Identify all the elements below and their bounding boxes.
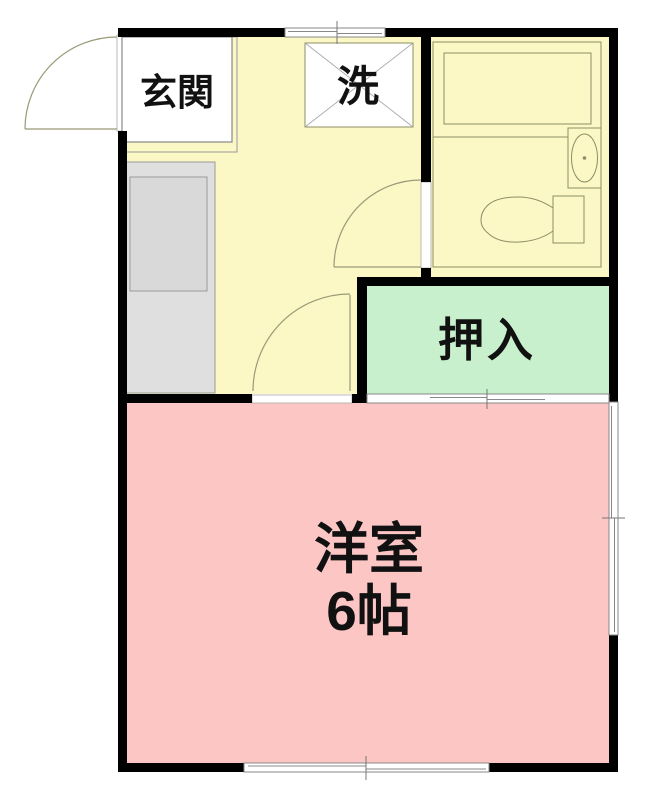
floor-plan-page: 玄関 洗 押入 洋室 6帖 (0, 0, 650, 800)
wall-bathroom-upper (421, 28, 431, 182)
room-door-opening (252, 395, 352, 403)
kitchen-sink (130, 177, 207, 291)
sink-drain-icon (583, 156, 587, 160)
wall-top-left (118, 28, 285, 37)
closet-label: 押入 (438, 314, 536, 366)
wall-bottom-left (118, 763, 244, 772)
wall-closet-top (357, 277, 618, 286)
closet-sliding-door (367, 394, 609, 403)
wall-right-lower (609, 635, 618, 772)
wall-kitchen-room-right (352, 394, 367, 403)
washing-machine-label: 洗 (337, 63, 379, 110)
genkan-label: 玄関 (140, 72, 214, 113)
western-room-size-label: 6帖 (326, 580, 412, 642)
wall-bottom-right (489, 763, 618, 772)
bathroom-door-opening (421, 182, 431, 268)
bathroom-floor (431, 37, 609, 277)
window-top (285, 28, 385, 37)
wall-right-upper (609, 28, 618, 402)
wall-kitchen-room-left (118, 394, 252, 403)
western-room-label: 洋室 (314, 518, 424, 580)
wall-top-right (385, 28, 618, 37)
kitchen-counter (124, 162, 215, 393)
wall-left (118, 131, 127, 772)
floor-plan: 玄関 洗 押入 洋室 6帖 (0, 0, 650, 800)
wall-closet-left (357, 277, 367, 403)
